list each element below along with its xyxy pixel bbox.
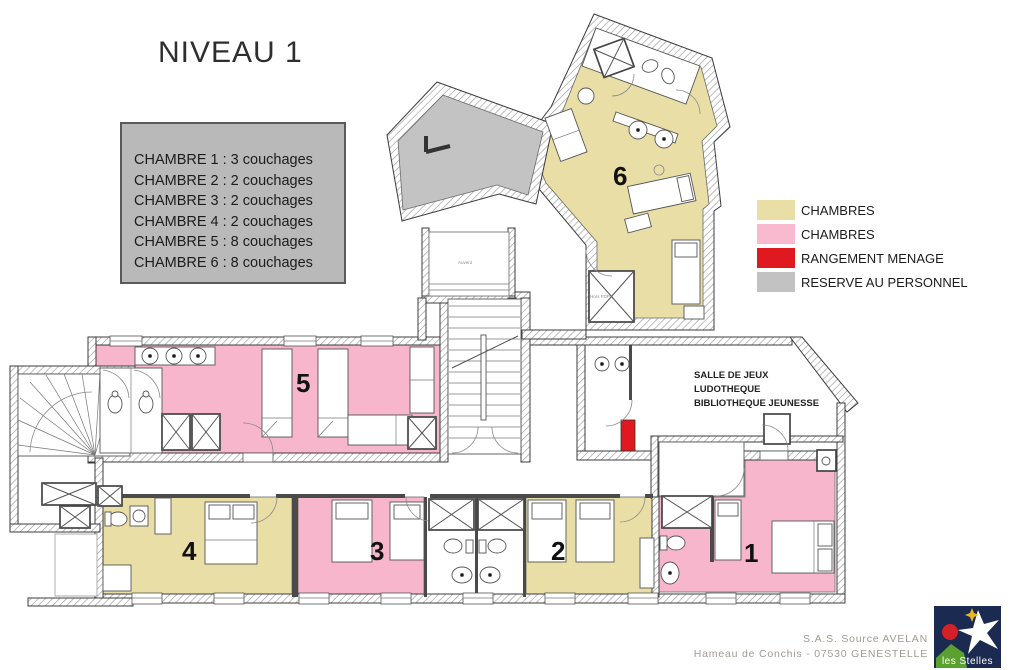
legend-row-chambres-tan: CHAMBRES [757,198,968,222]
legend-label: CHAMBRES [801,227,875,242]
room-1-number: 1 [744,538,758,568]
sink-icon [578,88,594,104]
toilet-icon [139,395,153,413]
logo-sun-icon [942,624,958,640]
room-2-number: 2 [551,536,565,566]
toilet-icon [488,539,506,553]
bed [262,349,292,437]
page: 5 SALLE DE JEUX LUDOTHEQUE BIBLIOTHEQUE … [0,0,1024,670]
info-line: CHAMBRE 4 : 2 couchages [134,212,344,233]
room-5-number: 5 [296,368,310,398]
legend: CHAMBRES CHAMBRES RANGEMENT MENAGE RESER… [757,198,968,294]
rooms-info-box: CHAMBRE 1 : 3 couchages CHAMBRE 2 : 2 co… [120,122,346,284]
bed [348,415,412,445]
cleaning-closet [621,420,635,451]
canopy: Auvent [429,232,509,296]
info-line: CHAMBRE 2 : 2 couchages [134,171,344,192]
logo: les Stelles [934,606,1001,668]
legend-swatch [757,272,795,292]
closet [764,414,790,444]
info-line: CHAMBRE 5 : 8 couchages [134,232,344,253]
info-line: CHAMBRE 3 : 2 couchages [134,191,344,212]
company-address: Hameau de Conchis - 07530 GENESTELLE [694,647,928,662]
wardrobe [155,498,171,534]
legend-swatch [757,224,795,244]
room-4-number: 4 [182,536,197,566]
info-line: CHAMBRE 1 : 3 couchages [134,150,344,171]
toilet-icon [667,536,685,550]
toilet-icon [444,539,462,553]
playroom-label-3: BIBLIOTHEQUE JEUNESSE [694,398,819,409]
legend-row-reserve: RESERVE AU PERSONNEL [757,270,968,294]
legend-label: CHAMBRES [801,203,875,218]
room-6-number: 6 [613,161,627,191]
legend-row-chambres-pink: CHAMBRES [757,222,968,246]
legend-label: RANGEMENT MENAGE [801,251,944,266]
legend-row-rangement: RANGEMENT MENAGE [757,246,968,270]
closet [103,565,131,591]
toilet-icon [109,512,127,526]
playroom-label-1: SALLE DE JEUX [694,370,769,381]
shaft-label: Hors FDP [590,294,610,299]
legend-swatch [757,200,795,220]
porch [55,534,97,596]
page-title: NIVEAU 1 [158,36,303,70]
entry-nook [659,442,744,496]
info-line: CHAMBRE 6 : 8 couchages [134,253,344,274]
playroom-label-2: LUDOTHEQUE [694,384,761,395]
bed [318,349,348,437]
floor-plan: 5 SALLE DE JEUX LUDOTHEQUE BIBLIOTHEQUE … [0,0,1024,670]
logo-text: les Stelles [934,656,1001,667]
canopy-label: Auvent [458,260,473,265]
footer: S.A.S. Source AVELAN Hameau de Conchis -… [694,632,928,662]
central-staircase [448,299,521,454]
door-leaf [640,538,654,588]
room-3-number: 3 [370,536,384,566]
toilet-icon [108,395,122,413]
company-name: S.A.S. Source AVELAN [694,632,928,647]
legend-swatch [757,248,795,268]
legend-label: RESERVE AU PERSONNEL [801,275,968,290]
